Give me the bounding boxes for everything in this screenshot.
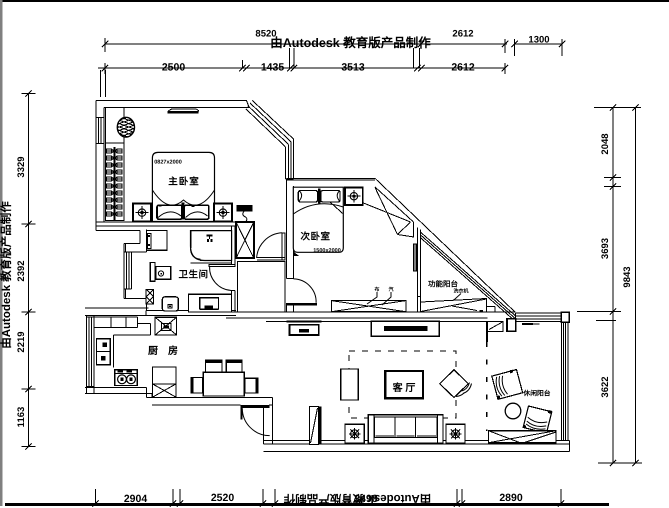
- svg-text:3693: 3693: [600, 238, 611, 259]
- svg-text:休闲阳台: 休闲阳台: [522, 390, 550, 398]
- svg-text:1300: 1300: [528, 35, 549, 46]
- svg-text:2048: 2048: [600, 133, 611, 154]
- svg-text:3622: 3622: [600, 376, 611, 397]
- svg-text:房: 房: [168, 345, 178, 357]
- svg-text:2392: 2392: [16, 260, 27, 281]
- svg-text:布: 布: [374, 286, 379, 293]
- svg-text:2612: 2612: [451, 62, 475, 74]
- svg-text:1163: 1163: [16, 407, 27, 428]
- svg-text:由Autodesk 教育版产品制作: 由Autodesk 教育版产品制作: [283, 492, 431, 506]
- svg-text:0827x2000: 0827x2000: [154, 160, 182, 166]
- svg-text:9843: 9843: [622, 266, 633, 287]
- svg-text:2904: 2904: [124, 493, 148, 505]
- svg-text:汽: 汽: [388, 286, 393, 293]
- svg-text:次卧室: 次卧室: [300, 231, 330, 243]
- svg-text:3513: 3513: [341, 62, 365, 74]
- svg-text:由Autodesk 教育版产品制作: 由Autodesk 教育版产品制作: [0, 201, 13, 349]
- svg-text:2612: 2612: [452, 29, 473, 40]
- svg-text:1435: 1435: [261, 62, 285, 74]
- svg-text:2500: 2500: [162, 62, 186, 74]
- svg-text:3329: 3329: [16, 156, 27, 177]
- svg-text:2219: 2219: [16, 331, 27, 352]
- svg-text:2890: 2890: [499, 492, 523, 504]
- svg-text:客 厅: 客 厅: [392, 382, 416, 394]
- svg-text:功能阳台: 功能阳台: [428, 280, 458, 289]
- svg-text:由Autodesk 教育版产品制作: 由Autodesk 教育版产品制作: [270, 36, 431, 50]
- svg-text:1500x2000: 1500x2000: [313, 248, 341, 254]
- svg-text:厨: 厨: [148, 345, 158, 357]
- svg-text:卫生间: 卫生间: [178, 269, 208, 281]
- svg-text:2520: 2520: [211, 492, 235, 504]
- svg-text:主卧室: 主卧室: [168, 176, 200, 188]
- svg-text:洗衣机: 洗衣机: [453, 288, 468, 295]
